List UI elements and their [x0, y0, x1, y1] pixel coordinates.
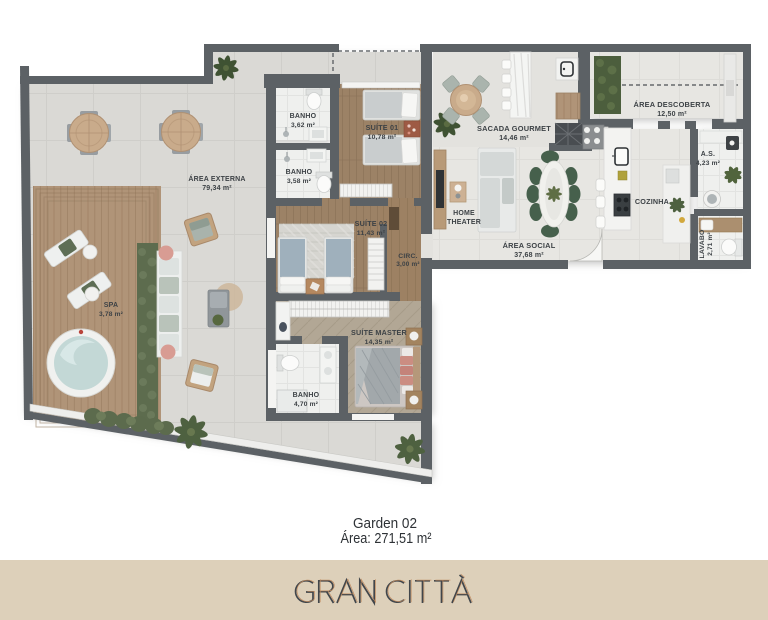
- svg-text:14,46 m²: 14,46 m²: [499, 135, 529, 142]
- svg-text:SPA: SPA: [104, 302, 118, 309]
- svg-text:THEATER: THEATER: [447, 219, 481, 226]
- svg-text:SUÍTE MASTER: SUÍTE MASTER: [351, 328, 408, 337]
- svg-text:3,62 m²: 3,62 m²: [291, 122, 316, 129]
- svg-text:4,23 m²: 4,23 m²: [696, 160, 721, 167]
- svg-text:ÁREA DESCOBERTA: ÁREA DESCOBERTA: [634, 100, 711, 109]
- svg-text:HOME: HOME: [453, 210, 475, 217]
- svg-text:ÁREA SOCIAL: ÁREA SOCIAL: [503, 241, 556, 250]
- svg-text:3,00 m²: 3,00 m²: [396, 261, 419, 268]
- svg-text:3,78 m²: 3,78 m²: [99, 311, 124, 318]
- svg-text:BANHO: BANHO: [293, 392, 320, 399]
- svg-text:Área: 271,51 m²: Área: 271,51 m²: [341, 530, 432, 547]
- svg-text:SUÍTE 02: SUÍTE 02: [355, 219, 388, 228]
- svg-text:12,50 m²: 12,50 m²: [657, 111, 687, 118]
- svg-text:3,58 m²: 3,58 m²: [287, 178, 312, 185]
- svg-text:2,71 m²: 2,71 m²: [707, 232, 714, 255]
- svg-text:ÁREA EXTERNA: ÁREA EXTERNA: [188, 174, 245, 183]
- svg-text:SACADA GOURMET: SACADA GOURMET: [477, 124, 551, 133]
- svg-text:10,78 m²: 10,78 m²: [368, 134, 397, 141]
- svg-text:4,70 m²: 4,70 m²: [294, 401, 319, 408]
- svg-text:11,43 m²: 11,43 m²: [357, 230, 386, 237]
- svg-text:COZINHA: COZINHA: [635, 197, 669, 206]
- svg-text:BANHO: BANHO: [286, 169, 313, 176]
- svg-text:79,34 m²: 79,34 m²: [202, 185, 232, 192]
- svg-text:LAVABO: LAVABO: [699, 230, 706, 259]
- svg-text:14,35 m²: 14,35 m²: [365, 339, 394, 346]
- svg-text:SUÍTE 01: SUÍTE 01: [366, 123, 399, 132]
- svg-text:37,68 m²: 37,68 m²: [514, 252, 544, 259]
- svg-text:A.S.: A.S.: [701, 151, 715, 158]
- svg-text:CIRC.: CIRC.: [398, 253, 418, 260]
- svg-text:BANHO: BANHO: [290, 113, 317, 120]
